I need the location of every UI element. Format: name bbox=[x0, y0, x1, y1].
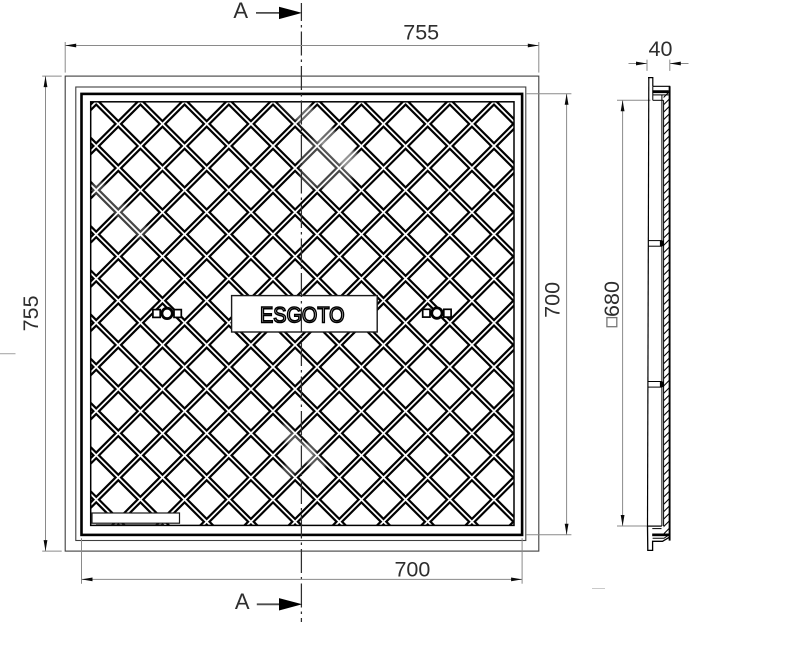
svg-text:700: 700 bbox=[541, 282, 565, 318]
svg-text:40: 40 bbox=[649, 37, 673, 61]
svg-text:A: A bbox=[233, 0, 248, 23]
svg-text:680: 680 bbox=[600, 281, 624, 317]
svg-text:A: A bbox=[235, 589, 250, 614]
svg-text:700: 700 bbox=[394, 558, 430, 582]
svg-text:755: 755 bbox=[19, 295, 43, 331]
svg-text:ESGOTO: ESGOTO bbox=[260, 302, 345, 327]
svg-text:755: 755 bbox=[403, 21, 439, 45]
